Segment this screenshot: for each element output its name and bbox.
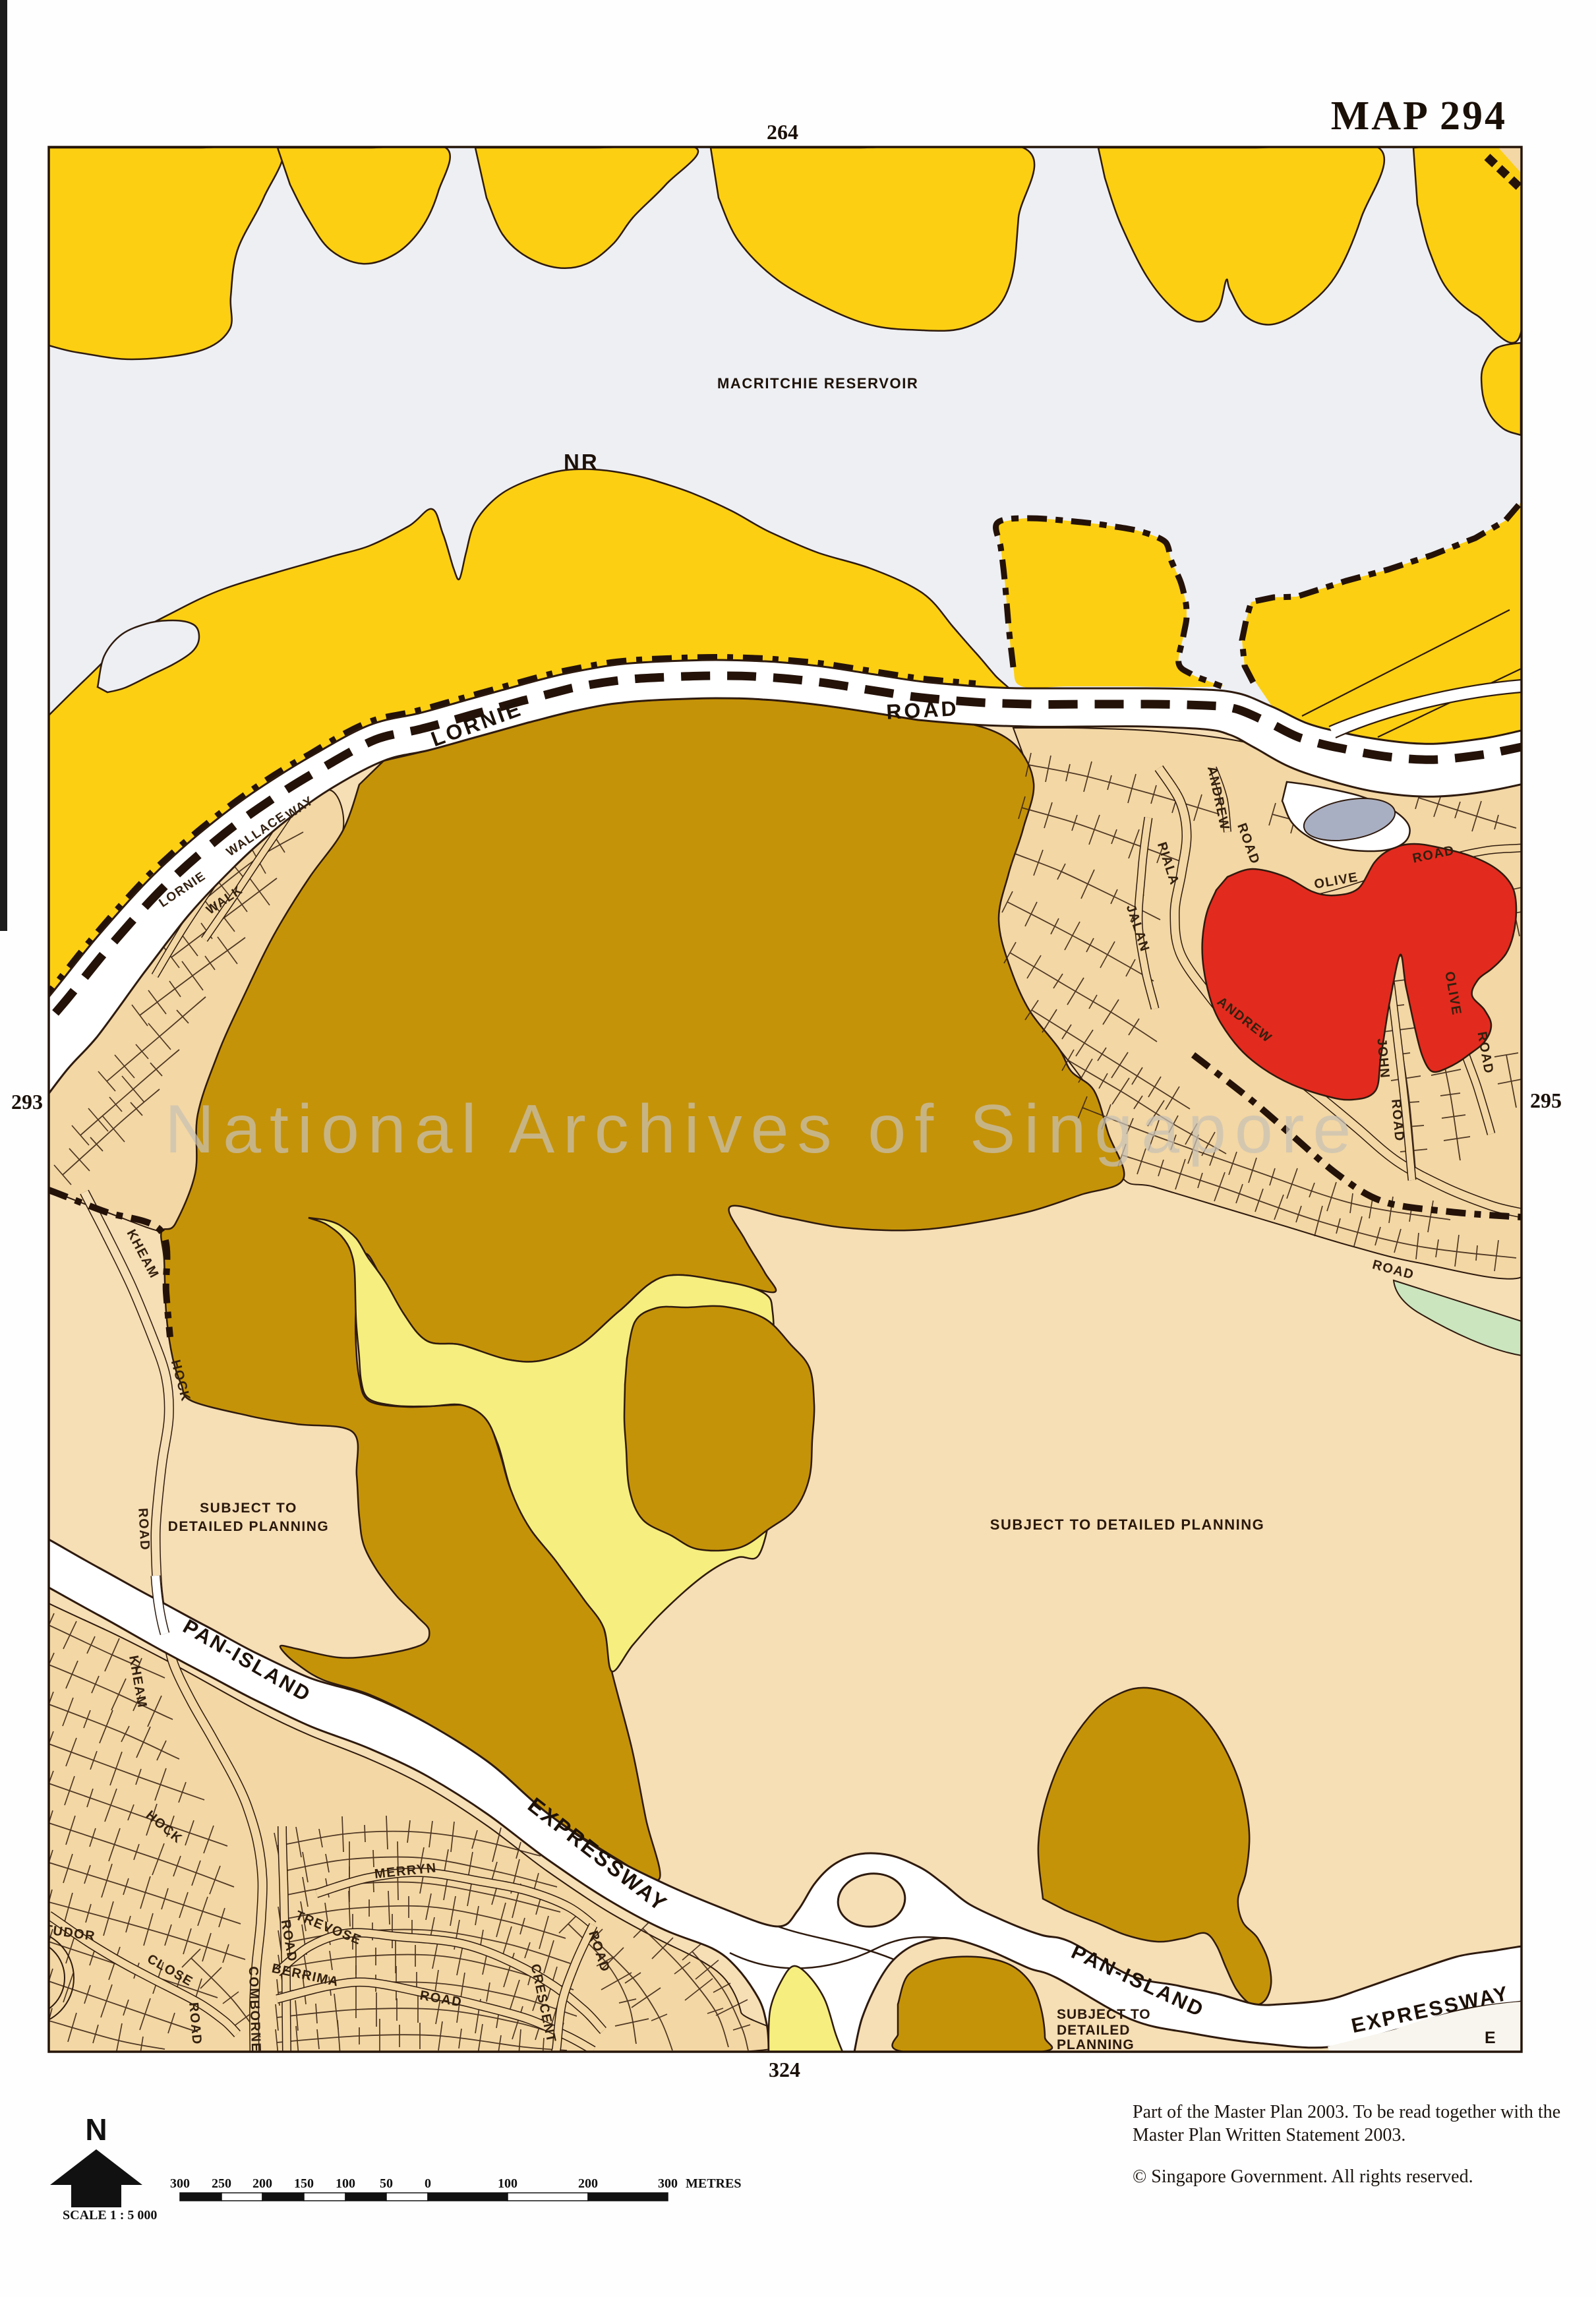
svg-text:200: 200: [578, 2176, 598, 2191]
svg-text:N: N: [85, 2112, 107, 2147]
svg-text:ROAD: ROAD: [135, 1508, 152, 1551]
svg-text:MACRITCHIE RESERVOIR: MACRITCHIE RESERVOIR: [717, 375, 918, 392]
svg-text:E: E: [1485, 2029, 1496, 2047]
svg-text:250: 250: [212, 2176, 231, 2191]
svg-text:SUBJECT TO: SUBJECT TO: [1057, 2007, 1151, 2022]
svg-text:100: 100: [336, 2176, 355, 2191]
svg-text:National Archives of Singapore: National Archives of Singapore: [165, 1091, 1359, 1168]
svg-text:295: 295: [1530, 1089, 1562, 1112]
svg-text:MAP 294: MAP 294: [1331, 94, 1507, 138]
svg-text:100: 100: [498, 2176, 517, 2191]
svg-text:200: 200: [252, 2176, 272, 2191]
svg-text:DETAILED: DETAILED: [1057, 2023, 1130, 2038]
svg-text:SUBJECT TO: SUBJECT TO: [200, 1501, 297, 1516]
svg-text:SCALE 1 : 5 000: SCALE 1 : 5 000: [63, 2208, 157, 2222]
svg-text:DETAILED PLANNING: DETAILED PLANNING: [168, 1519, 329, 1534]
svg-text:150: 150: [294, 2176, 314, 2191]
svg-text:264: 264: [767, 120, 798, 144]
svg-text:© Singapore Government. All: © Singapore Government. All rights reser…: [1133, 2166, 1473, 2187]
svg-text:300: 300: [170, 2176, 190, 2191]
svg-text:300: 300: [658, 2176, 678, 2191]
svg-text:Master Plan Written Statement: Master Plan Written Statement 2003.: [1133, 2125, 1405, 2145]
svg-text:50: 50: [380, 2176, 393, 2191]
svg-text:NR: NR: [564, 450, 599, 474]
svg-text:SUBJECT TO DETAILED PLANNING: SUBJECT TO DETAILED PLANNING: [990, 1516, 1264, 1533]
svg-text:324: 324: [769, 2058, 800, 2081]
svg-text:Part of the Master Plan 2003.: Part of the Master Plan 2003. To be read…: [1133, 2102, 1560, 2122]
svg-text:COMBORNE: COMBORNE: [246, 1966, 264, 2053]
svg-text:0: 0: [425, 2176, 431, 2191]
svg-text:ROAD: ROAD: [885, 696, 959, 724]
svg-text:METRES: METRES: [686, 2176, 741, 2191]
svg-text:293: 293: [11, 1090, 43, 1114]
svg-text:PLANNING: PLANNING: [1057, 2037, 1135, 2052]
